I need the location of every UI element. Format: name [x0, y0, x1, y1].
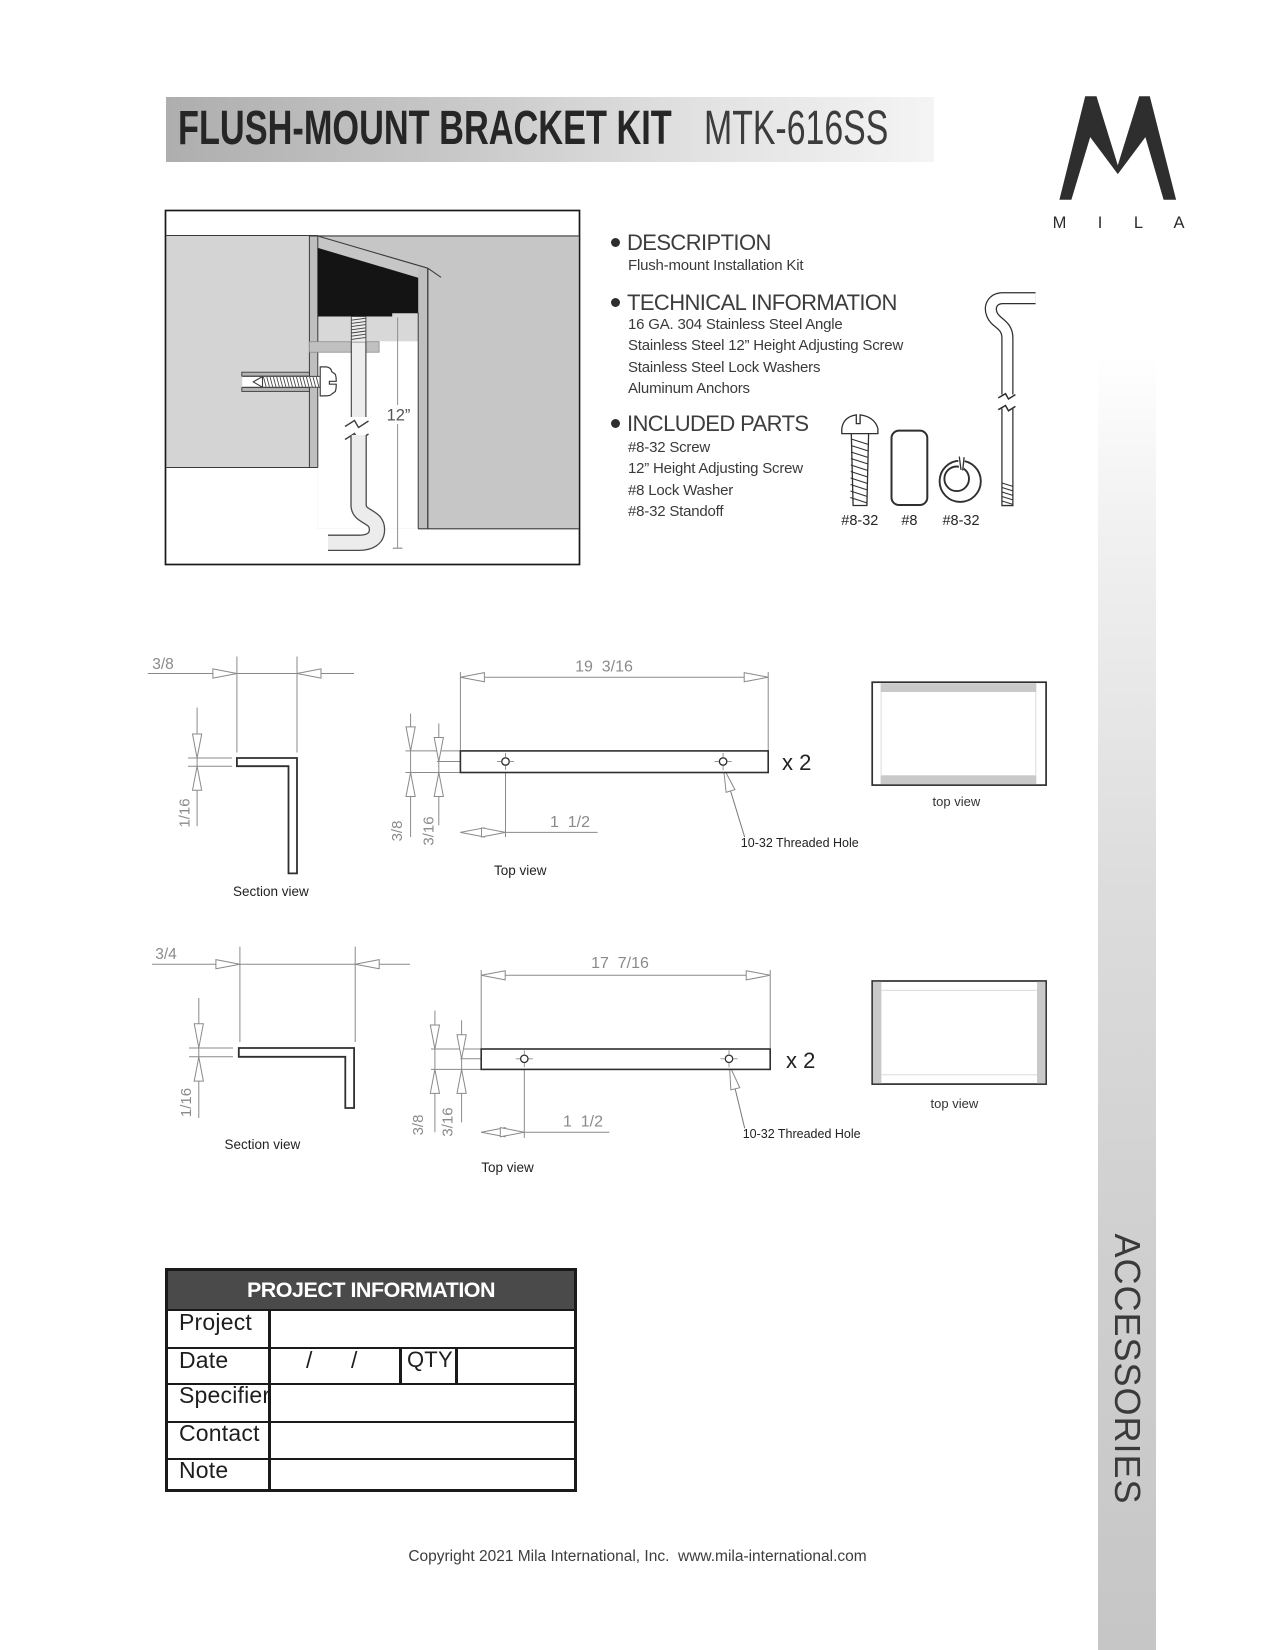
svg-text:#8: #8 — [901, 513, 917, 529]
svg-text:3/8: 3/8 — [389, 821, 406, 842]
svg-text:x 2: x 2 — [786, 1048, 815, 1073]
svg-text:1/16: 1/16 — [177, 798, 194, 827]
svg-text:A: A — [1173, 214, 1184, 232]
svg-text:10-32 Threaded Hole: 10-32 Threaded Hole — [743, 1127, 861, 1141]
svg-text:1 1/2: 1 1/2 — [550, 814, 590, 831]
svg-text:top view: top view — [931, 1096, 979, 1111]
svg-text:x 2: x 2 — [782, 750, 811, 775]
svg-text:3/8: 3/8 — [410, 1115, 427, 1136]
svg-text:1 1/2: 1 1/2 — [563, 1114, 603, 1131]
svg-text:17 7/16: 17 7/16 — [591, 955, 649, 972]
svg-text:19 3/16: 19 3/16 — [575, 659, 633, 676]
svg-text:12”: 12” — [387, 407, 411, 425]
svg-text:Top view: Top view — [481, 1160, 534, 1175]
svg-text:I: I — [1098, 214, 1103, 232]
svg-text:10-32 Threaded Hole: 10-32 Threaded Hole — [741, 836, 859, 850]
svg-text:top view: top view — [933, 794, 981, 809]
svg-text:3/16: 3/16 — [421, 816, 438, 845]
svg-text:3/4: 3/4 — [155, 946, 177, 963]
svg-text:3/8: 3/8 — [152, 656, 174, 673]
svg-text:Top view: Top view — [494, 863, 547, 878]
svg-text:1/16: 1/16 — [178, 1088, 195, 1117]
svg-text:3/16: 3/16 — [440, 1107, 457, 1136]
svg-text:Section view: Section view — [233, 884, 309, 899]
svg-text:#8-32: #8-32 — [841, 513, 878, 529]
svg-text:#8-32: #8-32 — [942, 513, 979, 529]
svg-text:Section view: Section view — [225, 1137, 301, 1152]
svg-text:L: L — [1134, 214, 1143, 232]
svg-text:M: M — [1053, 214, 1067, 232]
